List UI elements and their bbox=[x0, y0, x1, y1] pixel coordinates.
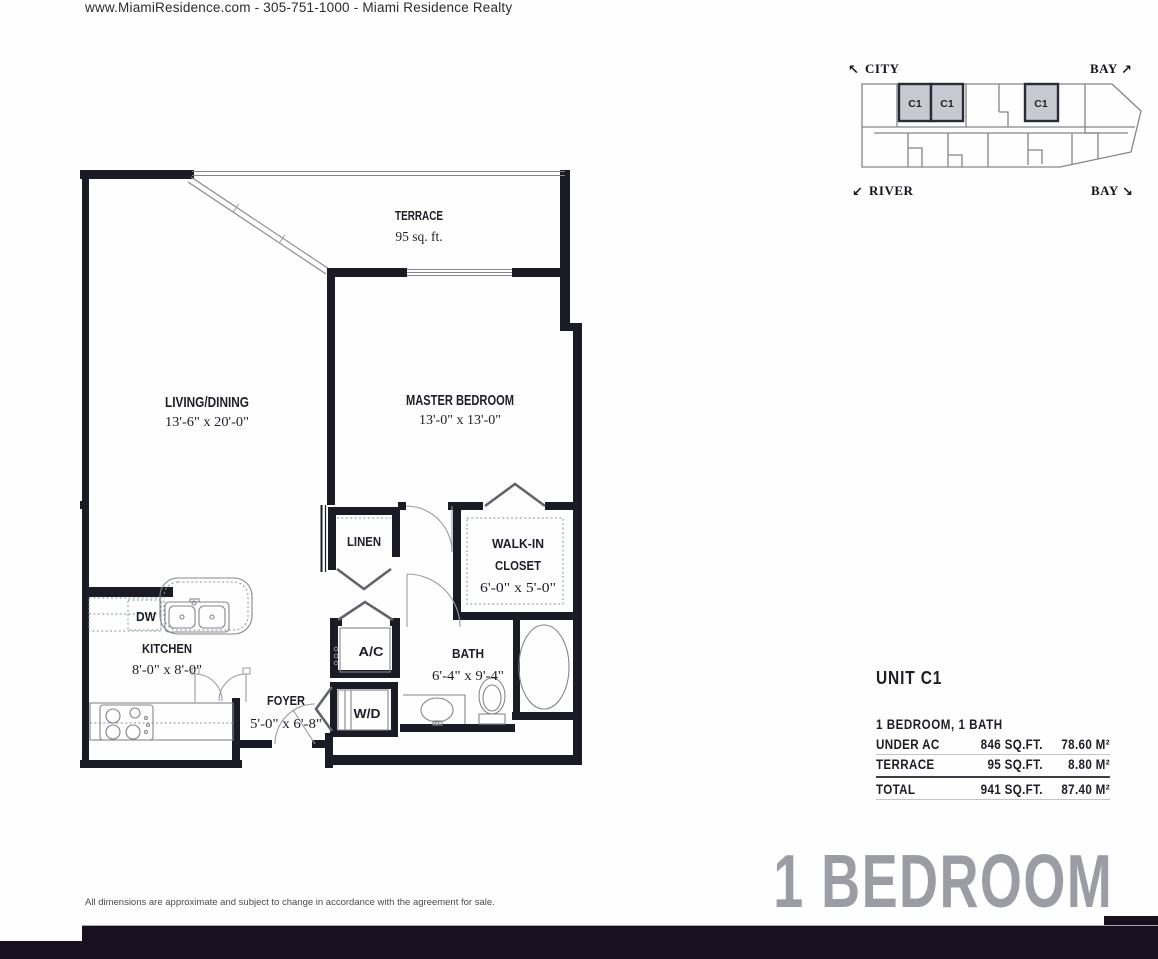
room-label-foyer: FOYER bbox=[267, 693, 306, 708]
row-sqft: 846 SQ.FT. bbox=[964, 737, 1043, 753]
row-m2: 8.80 M² bbox=[1043, 757, 1110, 773]
room-dims-bath: 6'-4" x 9'-4" bbox=[432, 668, 504, 683]
keyplan-unit-label: C1 bbox=[1034, 98, 1048, 110]
bath-sink bbox=[421, 698, 453, 725]
keyplan-label-city: CITY bbox=[865, 61, 900, 76]
kitchen-sink bbox=[165, 599, 229, 632]
room-dims-walkin: 6'-0" x 5'-0" bbox=[480, 580, 556, 595]
keyplan-unit-label: C1 bbox=[940, 98, 954, 110]
unit-subtitle: 1 BEDROOM, 1 BATH bbox=[876, 717, 1117, 732]
keyplan-unit-c1-1: C1 bbox=[899, 84, 931, 121]
room-dims-living-dining: 13'-6" x 20'-0" bbox=[165, 414, 249, 429]
keyplan-label-bay-bottom: BAY bbox=[1091, 183, 1119, 198]
divider-total bbox=[876, 776, 1110, 778]
room-label-walkin-2: CLOSET bbox=[495, 558, 541, 573]
arrow-ne-icon: ↗ bbox=[1121, 63, 1132, 78]
terrace-wall-window bbox=[327, 268, 567, 277]
table-row-terrace: TERRACE 95 SQ.FT. 8.80 M² bbox=[876, 755, 1110, 774]
keyplan-unit-c1-3: C1 bbox=[1025, 84, 1058, 121]
toilet bbox=[479, 678, 505, 724]
row-sqft: 95 SQ.FT. bbox=[964, 757, 1043, 773]
arrow-se-icon: ↘ bbox=[1122, 185, 1133, 200]
room-dims-terrace: 95 sq. ft. bbox=[395, 229, 442, 244]
keyplan-unit-c1-2: C1 bbox=[931, 84, 963, 121]
disclaimer-text: All dimensions are approximate and subje… bbox=[85, 897, 495, 908]
unit-type-watermark: 1 BEDROOM bbox=[773, 851, 1113, 915]
unit-info-panel: UNIT C1 1 BEDROOM, 1 BATH UNDER AC 846 S… bbox=[876, 668, 1117, 800]
kitchen-fixtures bbox=[88, 578, 252, 740]
room-dims-master-bedroom: 13'-0" x 13'-0" bbox=[419, 412, 501, 427]
room-dims-kitchen: 8'-0" x 8'-0" bbox=[132, 662, 202, 677]
terrace-railing bbox=[188, 172, 565, 275]
room-label-terrace: TERRACE bbox=[395, 208, 443, 223]
row-m2: 78.60 M² bbox=[1043, 737, 1110, 753]
unit-title: UNIT C1 bbox=[876, 668, 1117, 689]
bathtub bbox=[519, 625, 569, 709]
building-key-plan: ↖ CITY BAY ↗ ↙ RIVER BAY ↘ bbox=[838, 52, 1148, 207]
divider bbox=[876, 799, 1110, 800]
room-label-living-dining: LIVING/DINING bbox=[165, 394, 249, 411]
page: www.MiamiResidence.com - 305-751-1000 - … bbox=[0, 0, 1158, 959]
row-m2: 87.40 M² bbox=[1043, 782, 1110, 798]
contact-header: www.MiamiResidence.com - 305-751-1000 - … bbox=[85, 0, 512, 15]
keyplan-unit-label: C1 bbox=[908, 98, 922, 110]
floor-plan: TERRACE 95 sq. ft. LIVING/DINING 13'-6" … bbox=[75, 162, 595, 774]
row-sqft: 941 SQ.FT. bbox=[964, 782, 1043, 798]
room-label-ac: A/C bbox=[359, 644, 385, 659]
room-label-master-bedroom: MASTER BEDROOM bbox=[406, 392, 514, 409]
footer-bar-bottom bbox=[0, 941, 1158, 959]
room-label-dw: DW bbox=[136, 609, 157, 624]
room-label-bath: BATH bbox=[452, 646, 484, 661]
row-label: UNDER AC bbox=[876, 737, 964, 753]
row-label: TERRACE bbox=[876, 757, 964, 773]
room-label-linen: LINEN bbox=[347, 534, 381, 549]
table-row-total: TOTAL 941 SQ.FT. 87.40 M² bbox=[876, 780, 1110, 799]
arrow-nw-icon: ↖ bbox=[848, 63, 859, 78]
table-row-under-ac: UNDER AC 846 SQ.FT. 78.60 M² bbox=[876, 735, 1110, 754]
room-dims-foyer: 5'-0" x 6'-8" bbox=[250, 716, 322, 731]
room-label-kitchen: KITCHEN bbox=[142, 641, 192, 656]
row-label: TOTAL bbox=[876, 782, 964, 798]
keyplan-label-bay-top: BAY bbox=[1090, 61, 1118, 76]
keyplan-label-river: RIVER bbox=[869, 183, 914, 198]
room-label-wd: W/D bbox=[354, 706, 381, 721]
arrow-sw-icon: ↙ bbox=[852, 185, 863, 200]
room-label-walkin-1: WALK-IN bbox=[492, 536, 544, 551]
